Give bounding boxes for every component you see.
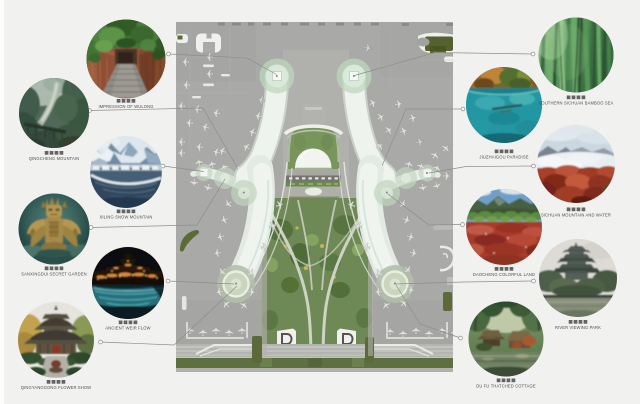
svg-text:QINGCHENG MOUNTAIN: QINGCHENG MOUNTAIN [29,156,80,161]
svg-text:XILING SNOW MOUNTAIN: XILING SNOW MOUNTAIN [100,215,153,220]
svg-text:DU FU THATCHED COTTAGE: DU FU THATCHED COTTAGE [476,384,536,389]
svg-text:SANXINGDUI SECRET GARDEN: SANXINGDUI SECRET GARDEN [21,272,86,277]
svg-text:QINGYANGGONG FLOWER SHOW: QINGYANGGONG FLOWER SHOW [21,385,91,390]
svg-text:ANCIENT WEIR FLOW: ANCIENT WEIR FLOW [105,326,150,331]
svg-text:JIUZHAIGOU PARADISE: JIUZHAIGOU PARADISE [479,155,528,160]
svg-text:IMPRESSION OF WULONG: IMPRESSION OF WULONG [98,104,153,109]
svg-text:DAOCHENG COLORFUL LAND: DAOCHENG COLORFUL LAND [473,272,535,277]
svg-text:SICHUAN MOUNTAIN AND WATER: SICHUAN MOUNTAIN AND WATER [541,213,611,218]
svg-text:RIVER VIEWING PARK: RIVER VIEWING PARK [555,325,601,330]
svg-text:SOUTHERN SICHUAN BAMBOO SEA: SOUTHERN SICHUAN BAMBOO SEA [538,101,613,106]
